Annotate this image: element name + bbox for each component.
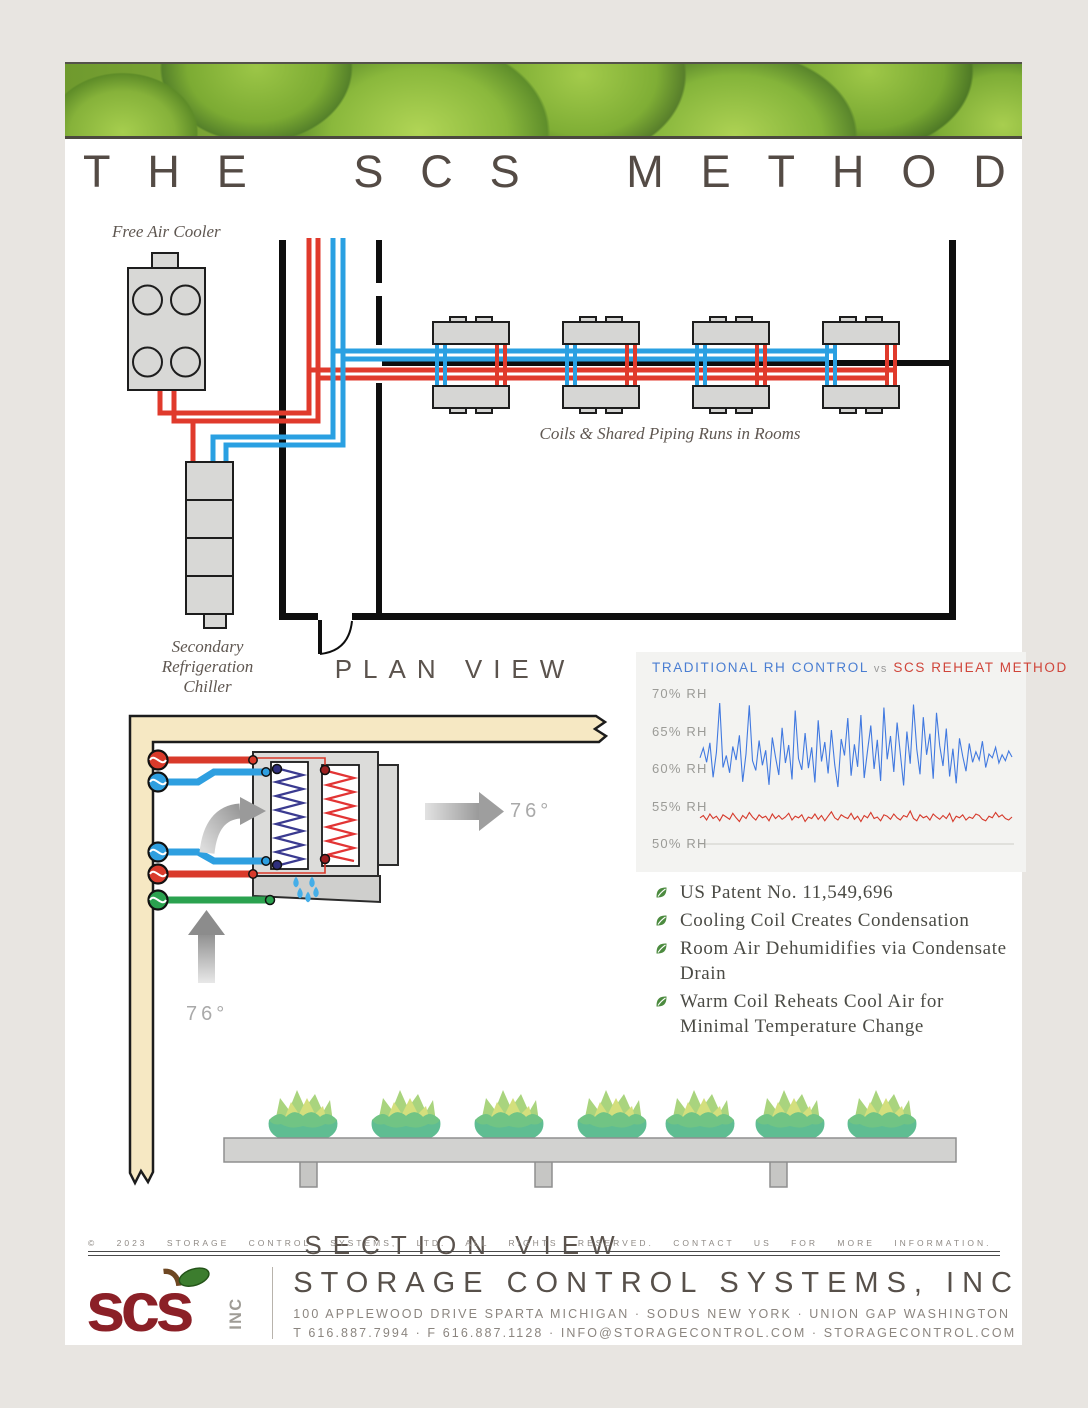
chart-title-vs: vs: [874, 663, 888, 675]
poster-page: THE SCS METHOD Free Air Cooler: [0, 0, 1088, 1408]
chart-title-traditional: TRADITIONAL RH CONTROL: [652, 660, 868, 675]
chiller-label: Secondary Refrigeration Chiller: [130, 637, 285, 697]
produce-shelf: [224, 1090, 956, 1187]
company-contact: T 616.887.7994 · F 616.887.1128 · INFO@S…: [293, 1326, 1020, 1340]
footer-rule: [88, 1251, 1000, 1256]
plan-walls: [279, 240, 956, 654]
free-air-cooler: [128, 253, 205, 390]
logo-inc-text: INC: [227, 1297, 245, 1329]
chart-title: TRADITIONAL RH CONTROL vs SCS REHEAT MET…: [652, 660, 1068, 675]
scs-logo: scs INC: [86, 1263, 258, 1343]
airflow-out-arrow: [425, 792, 504, 831]
apple-photo-banner: [65, 62, 1022, 139]
inlet-temp-label: 76°: [186, 1003, 228, 1026]
footer-divider: [272, 1267, 273, 1339]
footer-text-block: STORAGE CONTROL SYSTEMS, INC 100 APPLEWO…: [293, 1267, 1020, 1340]
section-view-diagram: [108, 698, 970, 1198]
coils-piping-label: Coils & Shared Piping Runs in Rooms: [490, 424, 850, 444]
secondary-refrigeration-chiller: [186, 462, 233, 628]
copyright-line: © 2023 STORAGE CONTROL SYSTEMS, LTD. ALL…: [88, 1238, 1000, 1248]
outlet-temp-label: 76°: [510, 800, 552, 823]
company-address: 100 APPLEWOOD DRIVE SPARTA MICHIGAN · SO…: [293, 1307, 1020, 1321]
footer: scs INC STORAGE CONTROL SYSTEMS, INC 100…: [86, 1263, 1020, 1343]
chart-title-scs: SCS REHEAT METHOD: [893, 660, 1067, 675]
logo-text: scs: [86, 1268, 192, 1343]
page-title: THE SCS METHOD: [65, 146, 1022, 198]
company-name: STORAGE CONTROL SYSTEMS, INC: [293, 1267, 1020, 1300]
plan-view-diagram: [70, 232, 970, 702]
door-swing-arc: [320, 621, 352, 654]
airflow-in-arrow: [188, 910, 225, 983]
lettuce-row: [269, 1090, 917, 1140]
plan-view-caption: PLAN VIEW: [330, 654, 580, 685]
